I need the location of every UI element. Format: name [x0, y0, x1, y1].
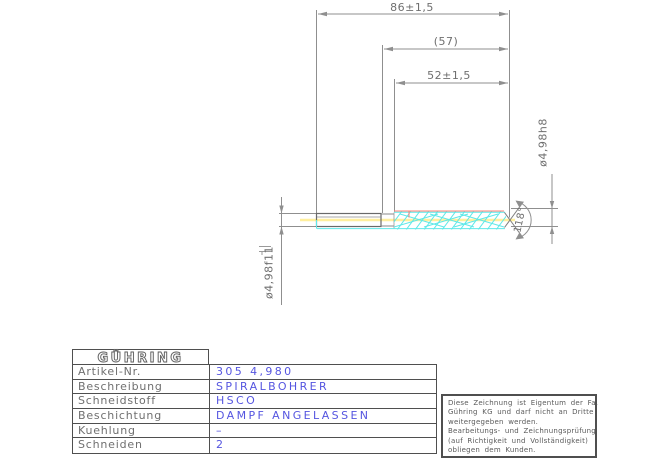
dim-overall-length-label: 86±1,5 — [372, 1, 452, 14]
row-value: SPIRALBOHRER — [210, 380, 436, 394]
row-label: Schneidstoff — [73, 394, 210, 408]
note-line: (auf Richtigkeit und Vollständigkeit) — [448, 437, 591, 446]
technical-drawing-page: 86±1,5 (57) 52±1,5 ø4,98f11 ø4,98h8 118°… — [0, 0, 670, 460]
table-row: Beschreibung SPIRALBOHRER — [73, 380, 436, 395]
note-line: obliegen dem Kunden. — [448, 446, 591, 455]
row-label: Schneiden — [73, 438, 210, 453]
dim-cutting-diameter-label: ø4,98h8 — [537, 101, 550, 185]
row-value: – — [210, 424, 436, 438]
ownership-note-box: Diese Zeichnung ist Eigentum der Fa. Güh… — [441, 394, 597, 458]
row-label: Beschreibung — [73, 380, 210, 394]
note-line: Diese Zeichnung ist Eigentum der Fa. — [448, 399, 591, 408]
row-value: DAMPF ANGELASSEN — [210, 409, 436, 423]
note-line: Gühring KG und darf nicht an Dritte — [448, 408, 591, 417]
row-value: 305 4,980 — [210, 365, 436, 379]
drill-body — [300, 205, 521, 235]
note-line: weitergegeben werden. — [448, 418, 591, 427]
note-line: Bearbeitungs- und Zeichnungsprüfung — [448, 427, 591, 436]
row-value: HSCO — [210, 394, 436, 408]
guhring-logo: GÜHRING — [72, 349, 209, 364]
title-block-table: Artikel-Nr. 305 4,980 Beschreibung SPIRA… — [72, 364, 437, 454]
table-row: Beschichtung DAMPF ANGELASSEN — [73, 409, 436, 424]
row-value: 2 — [210, 438, 436, 453]
table-row: Schneiden 2 — [73, 438, 436, 453]
table-row: Kuehlung – — [73, 424, 436, 439]
dim-shank-diameter-label: ø4,98f11 — [263, 231, 276, 315]
table-row: Schneidstoff HSCO — [73, 394, 436, 409]
table-row: Artikel-Nr. 305 4,980 — [73, 365, 436, 380]
row-label: Kuehlung — [73, 424, 210, 438]
row-label: Artikel-Nr. — [73, 365, 210, 379]
row-label: Beschichtung — [73, 409, 210, 423]
dim-reference-length-label: (57) — [416, 35, 476, 48]
dim-flute-length-label: 52±1,5 — [409, 69, 489, 82]
